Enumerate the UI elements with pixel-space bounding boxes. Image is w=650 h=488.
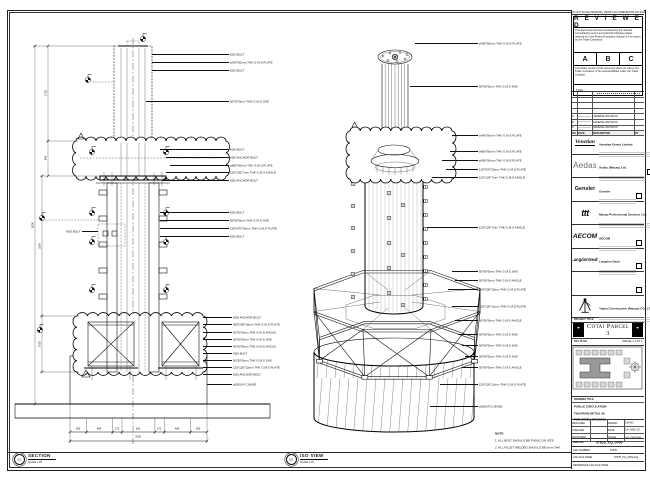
consultant-name: Venetian Orient Limited (599, 143, 633, 146)
view-title: SECTION (28, 453, 56, 460)
callout: ø2500 R.C BASE (430, 405, 526, 408)
iso-view: ø345*50mm THK G.M.S PLATE 50*50*5mm THK … (282, 14, 570, 452)
callout: M20 BOLT (152, 53, 259, 56)
dim-label: 1020 (39, 341, 42, 347)
callout: M20 ANCHOR BOLT (203, 373, 289, 376)
ttt-logo: ttt (581, 208, 589, 218)
callout: 120*120*12mm THK G.M.S PLATE (452, 305, 573, 308)
status-checkbox (636, 240, 642, 246)
cad-file-row: CAD FILE NAME 57635_PQ_0009.dwg (572, 454, 644, 461)
key-plan: KEY PLAN PARCEL 3, LOT 2 (572, 339, 644, 397)
callout: ø345*50mm THK G.M.S PLATE (442, 159, 564, 162)
project-banner: Cotai Parcel 3 (572, 323, 644, 340)
view-number-badge: 02 (286, 454, 297, 465)
project-name: Cotai Parcel 3 (585, 323, 631, 337)
status-b: B (596, 53, 619, 65)
consultant-name: AECOM (599, 237, 610, 240)
callout: M20 BOLT (203, 352, 262, 355)
venetian-logo: Venetian (575, 139, 595, 146)
contractor-block: Yadea Construction (Macau) CO., LTD. (572, 296, 644, 319)
status-checkbox (636, 287, 642, 293)
callout: 50*50*5mm THK G.M.S SHS (458, 333, 557, 336)
status-checkbox (636, 193, 642, 199)
aedas-logo: Aedas (573, 161, 597, 170)
callout: M20 BOLT (152, 69, 259, 72)
dwg-number-row: DWG NO 57635_PQ_0009 REV C (572, 439, 644, 447)
consultant-block-mps: ttt Macau Professional Services Ltd. (572, 202, 644, 226)
callout: ø345*50mm THK G.M.S PLATE (415, 42, 564, 45)
reference-cad-row: REFERENCE CAD FILE NAME (572, 462, 644, 469)
key-plan-label: KEY PLAN (574, 341, 587, 344)
view-scale: SCALE 1:25 (300, 461, 314, 464)
callout: 400*200*16mm THK G.M.S PLATE (448, 288, 573, 291)
status-a: A (574, 53, 596, 65)
callout: M20 BOLT (160, 211, 259, 214)
status-c: C (619, 53, 642, 65)
gensler-logo: Gensler (575, 186, 595, 192)
dim-label: 480 (97, 428, 101, 431)
consultant-name: Gensler (599, 190, 610, 193)
consultant-block-venetian: Venetian Venetian Orient Limited (572, 131, 644, 155)
callout: 50*50*5mm THK G.M.S ANGLE (462, 366, 564, 369)
dim-total-label: 2500 (135, 436, 141, 439)
key-plan-sub: PARCEL 3, LOT 2 (622, 341, 642, 344)
view-number-badge: 01 (14, 454, 25, 465)
dim-label: 1730 (45, 90, 48, 96)
banner-ornament-icon (573, 323, 584, 337)
callout: 120*670*25mm THK G.M.S PLATE (446, 168, 573, 171)
callout: 120*120*12mm THK G.M.S PLATE (440, 383, 573, 386)
callout: 50*50*5mm THK G.M.S SHS (462, 344, 557, 347)
callout: M20 ANCHOR BOLT (203, 316, 289, 319)
consultant-block-empty (572, 272, 644, 296)
iso-view-label: 02 ISO VIEW SCALE 1:25 (286, 453, 328, 468)
iso-drawing (282, 14, 570, 452)
callout: M20 BOLT (160, 148, 259, 151)
callout: 50*50*5mm THK G.M.S ANGLE (455, 279, 564, 282)
review-stamp: R E V I E W E D This document has been r… (572, 15, 644, 92)
dim-label: 6530 (32, 222, 35, 228)
dim-label: 600 (136, 428, 140, 431)
dim-label: 170 (157, 428, 161, 431)
status-abc-row: A B C (574, 53, 642, 66)
dim-label: 300 (196, 428, 200, 431)
callout: 50*50*5mm THK G.M.S SHS (410, 85, 557, 88)
review-paragraph: This document has been reviewed by the r… (574, 28, 642, 53)
title-block: DO NOT SCALE DRAWING. VERIFY ALL DIMENSI… (571, 10, 644, 469)
consultant-name: Aedas (Macau) Ltd. (599, 167, 627, 170)
callout: ø2500 R.C BASE (207, 383, 280, 386)
callout: 50*50*5mm THK G.M.S ANGLE (455, 319, 564, 322)
consultant-name: Macau Professional Services Ltd. (599, 214, 647, 217)
note-line: 2. ALL FILLET WELDED SHOULD BE 6mm THK. (495, 447, 561, 450)
callout: 50*50*5mm THK G.M.S SHS (465, 355, 557, 358)
dim-label: 2550 (39, 243, 42, 249)
consultant-block-langdon: LangdonSeah Langdon Seah (572, 249, 644, 273)
view-title: ISO VIEW (300, 453, 328, 460)
consultant-block-gensler: Gensler Gensler (572, 178, 644, 202)
langdon-seah-logo: LangdonSeah (572, 257, 598, 262)
dim-label: 480 (175, 428, 179, 431)
callout: M20 ANCHOR BOLT (162, 179, 286, 182)
note-title: NOTE: (495, 433, 561, 436)
dim-label: 640 (45, 156, 48, 160)
drawing-title-block: DRAWING TITLE PUBLIC CIRCULATION FOUNTAI… (572, 397, 644, 420)
consultant-block-aedas: Aedas Aedas (Macau) Ltd. (572, 155, 644, 179)
callout: 120*120*7mm THK G.M.S ANGLE (427, 226, 571, 229)
consultant-block-aecom: AECOM AECOM (572, 225, 644, 249)
aecom-logo: AECOM (573, 233, 597, 240)
callout: ø800*50mm THK G.M.S PLATE (450, 150, 564, 153)
drawing-title-line: PUBLIC CIRCULATION (574, 406, 608, 409)
drawing-title-label: DRAWING TITLE (574, 398, 594, 401)
section-view: M20 BOLT ø345*50mm THK G.M.S PLATE M20 B… (10, 14, 282, 452)
cad-number-row: CAD NUMBER 57635 (572, 447, 644, 454)
key-plan-drawing (572, 346, 644, 397)
status-checkbox (636, 263, 642, 269)
contractor-logo-icon (572, 296, 598, 318)
banner-ornament-icon (632, 323, 643, 337)
revision-table: CGENERAL REVISION BGENERAL REVISION AGEN… (572, 92, 644, 131)
drawing-sheet: M20 BOLT ø345*50mm THK G.M.S PLATE M20 B… (0, 0, 650, 488)
callout: M20 BOLT (160, 235, 259, 238)
review-paragraph-2: Consultant review of this document does … (574, 66, 642, 85)
note-line: 1. ALL BOLT SHOULD BE FIXING ON SITE. (495, 440, 561, 443)
drawing-title-line: FOUNTAIN DETAIL IN (574, 412, 608, 415)
callout: 50*50*5mm THK G.M.S SHS (452, 270, 557, 273)
contractor-name: Yadea Construction (Macau) CO., LTD. (599, 308, 650, 311)
signoff-table: DESIGNED - DRAWN CHAD CHECKED - DATE 14-… (572, 420, 644, 439)
dwg-number: 57635_PQ_0009 (596, 441, 622, 445)
reviewed-title: R E V I E W E D (574, 17, 642, 28)
callout: M20 ANCHOR BOLT (166, 156, 286, 159)
dim-label: 300 (76, 428, 80, 431)
dim-label: 170 (115, 428, 119, 431)
view-scale: SCALE 1:25 (28, 461, 42, 464)
callout: ø345*50mm THK G.M.S PLATE (452, 134, 564, 137)
callout: 120*120*7mm THK G.M.S ANGLE (432, 176, 571, 179)
section-view-label: 01 SECTION SCALE 1:25 (14, 453, 56, 468)
callout: M20 BOLT (24, 230, 98, 233)
consultant-name: Langdon Seah (599, 261, 620, 264)
